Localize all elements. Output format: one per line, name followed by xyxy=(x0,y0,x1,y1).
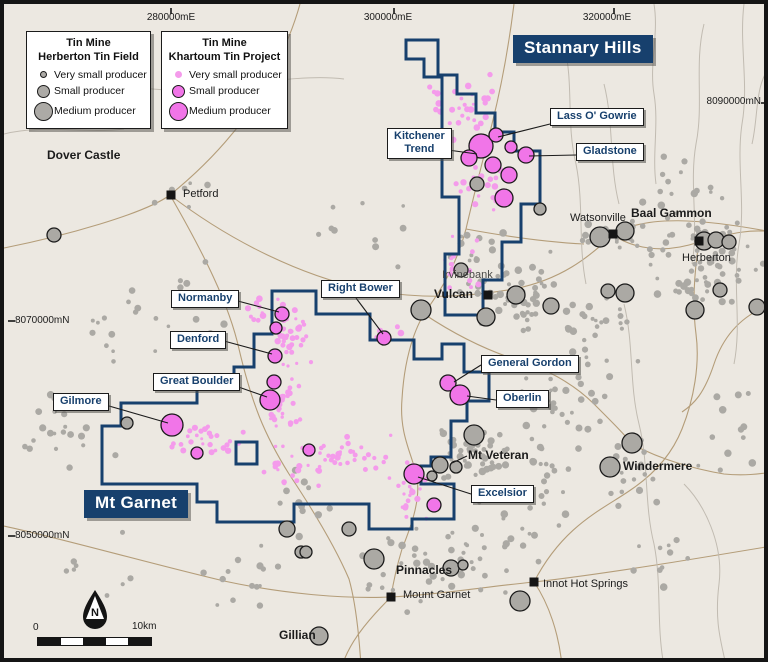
mine-dot-gray xyxy=(503,590,508,595)
mine-dot-gray xyxy=(698,265,704,271)
mine-dot-gray xyxy=(27,446,33,452)
mine-dot-gray xyxy=(676,289,682,295)
mine-dot-gray xyxy=(605,359,609,363)
mine-dot-gray xyxy=(445,474,451,480)
mine-circle-pink xyxy=(485,157,501,173)
mine-dot-gray xyxy=(669,192,673,196)
mine-dot-gray xyxy=(386,536,390,540)
north-arrow-icon: N xyxy=(80,588,110,632)
mine-dot-pink xyxy=(472,118,476,122)
mine-circle-gray xyxy=(543,298,559,314)
mine-dot-gray xyxy=(536,276,542,282)
road-line xyxy=(466,229,584,244)
mine-circle-pink xyxy=(505,141,517,153)
mine-dot-gray xyxy=(566,466,572,472)
mine-dot-pink xyxy=(290,455,293,458)
mine-dot-gray xyxy=(482,573,488,579)
mine-dot-gray xyxy=(741,435,746,440)
mine-dot-gray xyxy=(585,362,591,368)
mine-dot-gray xyxy=(154,316,159,321)
mine-dot-pink xyxy=(473,165,478,170)
mine-dot-pink xyxy=(299,343,304,348)
mine-dot-gray xyxy=(495,274,500,279)
mine-dot-gray xyxy=(457,289,463,295)
legend-item: Small producer xyxy=(32,85,145,98)
mine-dot-gray xyxy=(489,246,496,253)
mine-circle-pink xyxy=(161,414,183,436)
mine-dot-gray xyxy=(657,567,663,573)
mine-dot-gray xyxy=(66,464,72,470)
mine-dot-gray xyxy=(667,544,671,548)
mine-circle-gray xyxy=(622,433,642,453)
mine-dot-gray xyxy=(660,583,668,591)
mine-dot-gray xyxy=(430,572,437,579)
mine-dot-gray xyxy=(72,567,76,571)
mine-dot-gray xyxy=(472,525,479,532)
scale-bar-segment xyxy=(128,638,151,645)
legend-title-line2: Herberton Tin Field xyxy=(38,51,139,63)
mine-dot-gray xyxy=(621,478,627,484)
mine-dot-gray xyxy=(637,544,641,548)
legend-item-label: Very small producer xyxy=(54,69,147,81)
mine-dot-gray xyxy=(399,561,403,565)
mine-dot-pink xyxy=(363,467,368,472)
legend-item-label: Medium producer xyxy=(54,105,136,117)
mine-dot-gray xyxy=(735,221,740,226)
mine-dot-gray xyxy=(520,542,526,548)
mine-dot-pink xyxy=(366,452,371,457)
mine-dot-pink xyxy=(201,442,204,445)
mine-dot-gray xyxy=(445,534,451,540)
road-line xyxy=(170,195,361,662)
town-marker-mount-garnet xyxy=(387,593,396,602)
mine-dot-gray xyxy=(632,477,636,481)
mine-dot-pink xyxy=(298,417,302,421)
mine-dot-pink xyxy=(465,83,472,90)
mine-dot-gray xyxy=(480,533,484,537)
mine-dot-pink xyxy=(187,428,192,433)
mine-dot-gray xyxy=(636,359,641,364)
mine-dot-pink xyxy=(466,116,470,120)
mine-dot-pink xyxy=(449,257,453,261)
mine-dot-pink xyxy=(463,103,467,107)
mine-dot-pink xyxy=(214,433,219,438)
mine-dot-gray xyxy=(482,455,489,462)
mine-dot-gray xyxy=(412,545,419,552)
mine-dot-pink xyxy=(292,307,298,313)
mine-dot-gray xyxy=(503,302,507,306)
mine-dot-gray xyxy=(529,264,536,271)
mine-dot-pink xyxy=(451,235,454,238)
mine-dot-gray xyxy=(515,266,523,274)
mine-dot-gray xyxy=(523,422,531,430)
mine-dot-gray xyxy=(47,430,54,437)
creek-line xyxy=(604,84,619,204)
mine-dot-pink xyxy=(315,468,320,473)
mine-dot-gray xyxy=(372,243,379,250)
mine-dot-gray xyxy=(474,257,480,263)
swatch-cell xyxy=(167,71,189,78)
mine-dot-gray xyxy=(608,491,613,496)
mine-dot-gray xyxy=(641,449,647,455)
mine-dot-gray xyxy=(548,377,553,382)
mine-dot-gray xyxy=(681,158,687,164)
mine-dot-gray xyxy=(643,472,648,477)
mine-dot-gray xyxy=(603,317,610,324)
mine-dot-gray xyxy=(521,328,526,333)
mine-dot-gray xyxy=(665,179,671,185)
swatch-cell xyxy=(32,102,54,121)
swatch-cell xyxy=(167,85,189,98)
mine-dot-gray xyxy=(391,588,395,592)
mine-circle-gray xyxy=(600,457,620,477)
mine-circle-pink xyxy=(377,331,391,345)
mine-circle-gray xyxy=(534,203,546,215)
mine-circle-pink xyxy=(267,375,281,389)
mine-dot-gray xyxy=(530,458,538,466)
legend-title-line2: Khartoum Tin Project xyxy=(169,51,281,63)
mine-dot-gray xyxy=(754,268,758,272)
mine-dot-pink xyxy=(450,137,456,143)
mine-dot-gray xyxy=(592,333,598,339)
town-marker-innot-hot-springs xyxy=(530,578,539,587)
mine-dot-gray xyxy=(760,261,766,267)
mine-dot-pink xyxy=(281,415,284,418)
mine-dot-pink xyxy=(488,176,494,182)
mine-dot-gray xyxy=(296,533,303,540)
mine-dot-gray xyxy=(563,308,570,315)
mine-dot-gray xyxy=(561,490,565,494)
mine-dot-gray xyxy=(188,181,192,185)
mine-dot-pink xyxy=(454,181,459,186)
mine-dot-gray xyxy=(480,461,485,466)
mine-dot-gray xyxy=(465,461,472,468)
mine-dot-gray xyxy=(283,488,290,495)
mine-dot-gray xyxy=(637,465,643,471)
mine-dot-pink xyxy=(262,470,267,475)
mine-circle-gray xyxy=(427,471,437,481)
mine-circle-gray xyxy=(450,461,462,473)
mine-dot-pink xyxy=(353,458,357,462)
mine-dot-pink xyxy=(274,445,277,448)
mine-dot-gray xyxy=(534,360,540,366)
mine-dot-gray xyxy=(89,330,95,336)
mine-dot-pink xyxy=(249,315,253,319)
mine-dot-gray xyxy=(423,552,427,556)
mine-dot-gray xyxy=(675,211,679,215)
mine-dot-pink xyxy=(487,72,492,77)
mine-circle-gray xyxy=(590,227,610,247)
legend-item: Medium producer xyxy=(32,102,145,121)
mine-dot-gray xyxy=(630,219,635,224)
mine-dot-gray xyxy=(724,450,731,457)
mine-dot-gray xyxy=(372,237,378,243)
mine-circle-gray xyxy=(47,228,61,242)
mine-dot-gray xyxy=(367,582,373,588)
mine-dot-gray xyxy=(134,305,141,312)
mine-dot-pink xyxy=(486,183,490,187)
road-line xyxy=(534,582,562,662)
mine-dot-pink xyxy=(457,106,461,110)
mine-dot-gray xyxy=(620,490,625,495)
mine-dot-pink xyxy=(373,465,378,470)
mine-dot-gray xyxy=(689,268,694,273)
mine-dot-gray xyxy=(680,282,688,290)
mine-dot-gray xyxy=(39,424,46,431)
mine-circle-gray xyxy=(310,627,328,645)
mine-dot-gray xyxy=(482,447,486,451)
mine-dot-gray xyxy=(426,578,433,585)
mine-dot-pink xyxy=(207,431,212,436)
mine-dot-gray xyxy=(552,468,558,474)
mine-dot-gray xyxy=(360,201,364,205)
mine-dot-gray xyxy=(679,170,683,174)
leader-line xyxy=(467,396,496,400)
mine-dot-gray xyxy=(495,307,502,314)
mine-dot-pink xyxy=(198,429,203,434)
mine-dot-gray xyxy=(201,300,206,305)
mine-dot-pink xyxy=(291,401,296,406)
mine-dot-pink xyxy=(169,444,174,449)
mine-dot-gray xyxy=(657,189,663,195)
mine-dot-gray xyxy=(707,259,713,265)
mine-circle-pink xyxy=(275,307,289,321)
mine-dot-pink xyxy=(289,329,293,333)
leader-line xyxy=(224,341,272,354)
mine-dot-gray xyxy=(565,420,570,425)
mine-circle-pink xyxy=(495,189,513,207)
legend-title: Tin Mine Khartoum Tin Project xyxy=(167,37,282,65)
mine-dot-gray xyxy=(529,365,535,371)
mine-dot-gray xyxy=(735,391,742,398)
mine-dot-gray xyxy=(749,459,757,467)
mine-dot-gray xyxy=(536,559,542,565)
mine-dot-gray xyxy=(152,200,158,206)
mine-dot-gray xyxy=(532,285,538,291)
mine-dot-gray xyxy=(381,572,386,577)
mine-dot-gray xyxy=(713,256,718,261)
creek-line xyxy=(653,4,656,184)
swatch-cell xyxy=(32,71,54,78)
mine-dot-gray xyxy=(527,505,533,511)
mine-dot-gray xyxy=(653,499,660,506)
creek-line xyxy=(564,44,586,284)
mine-dot-gray xyxy=(703,275,708,280)
mine-dot-pink xyxy=(200,437,203,440)
mine-dot-gray xyxy=(412,553,417,558)
mine-dot-gray xyxy=(618,246,622,250)
mine-dot-gray xyxy=(525,302,530,307)
mine-dot-gray xyxy=(724,225,729,230)
mine-dot-pink xyxy=(294,317,297,320)
mine-dot-gray xyxy=(331,205,336,210)
mine-dot-gray xyxy=(578,381,584,387)
mine-dot-pink xyxy=(485,95,491,101)
mine-dot-gray xyxy=(121,582,125,586)
mine-dot-gray xyxy=(129,287,136,294)
mine-dot-gray xyxy=(618,313,624,319)
mine-dot-pink xyxy=(398,330,405,337)
mine-dot-pink xyxy=(195,434,199,438)
mine-dot-pink xyxy=(335,451,341,457)
mine-dot-pink xyxy=(427,84,432,89)
mine-dot-gray xyxy=(544,462,549,467)
mine-dot-pink xyxy=(359,445,363,449)
scale-bar-segment xyxy=(83,638,106,645)
mine-dot-gray xyxy=(428,563,435,570)
mine-dot-gray xyxy=(177,284,183,290)
mine-dot-gray xyxy=(306,485,311,490)
mine-dot-gray xyxy=(700,297,705,302)
mine-dot-pink xyxy=(353,453,358,458)
mine-circle-pink xyxy=(450,385,470,405)
mine-dot-gray xyxy=(720,271,726,277)
scale-bar-segment xyxy=(38,638,61,645)
mine-dot-gray xyxy=(508,497,514,503)
legend-herberton-tin-field: Tin Mine Herberton Tin Field Very small … xyxy=(26,31,151,129)
mine-circle-gray xyxy=(722,235,736,249)
swatch-cell xyxy=(32,85,54,98)
mine-dot-gray xyxy=(448,547,455,554)
mine-dot-pink xyxy=(344,434,350,440)
mine-dot-pink xyxy=(275,424,278,427)
mine-dot-gray xyxy=(64,568,69,573)
mine-dot-gray xyxy=(542,424,546,428)
mine-dot-gray xyxy=(468,259,472,263)
mine-dot-gray xyxy=(316,232,321,237)
mine-circle-gray xyxy=(713,283,727,297)
mine-dot-gray xyxy=(464,232,471,239)
mine-dot-gray xyxy=(275,564,281,570)
mine-dot-gray xyxy=(183,280,190,287)
mine-dot-pink xyxy=(326,454,330,458)
mine-dot-gray xyxy=(482,545,487,550)
scale-bar-segment xyxy=(106,638,129,645)
mine-dot-pink xyxy=(396,484,400,488)
mine-dot-gray xyxy=(685,556,690,561)
mine-dot-gray xyxy=(719,406,727,414)
mine-dot-gray xyxy=(220,320,227,327)
mine-dot-gray xyxy=(531,532,538,539)
boundary-mt-garnet-khartoum xyxy=(102,291,489,529)
mine-dot-gray xyxy=(615,443,622,450)
mine-dot-pink xyxy=(225,448,231,454)
mine-circle-gray xyxy=(454,263,468,277)
mine-dot-gray xyxy=(54,447,58,451)
legend-item: Very small producer xyxy=(32,69,145,81)
mine-dot-gray xyxy=(507,282,511,286)
mine-circle-gray xyxy=(470,177,484,191)
mine-dot-gray xyxy=(727,230,732,235)
mine-dot-gray xyxy=(737,268,741,272)
mine-dot-gray xyxy=(562,387,569,394)
mine-dot-pink xyxy=(472,201,478,207)
mine-dot-pink xyxy=(414,496,420,502)
mine-dot-gray xyxy=(254,584,260,590)
mine-circle-pink xyxy=(404,464,424,484)
mine-dot-gray xyxy=(474,290,481,297)
mine-dot-pink xyxy=(282,363,285,366)
mine-dot-gray xyxy=(635,244,639,248)
road-line xyxy=(342,597,391,662)
mine-circle-gray xyxy=(458,560,468,570)
mine-dot-gray xyxy=(557,523,562,528)
mine-dot-gray xyxy=(301,478,308,485)
mine-dot-gray xyxy=(602,394,608,400)
mine-dot-gray xyxy=(504,568,509,573)
mine-dot-pink xyxy=(489,89,495,95)
mine-dot-pink xyxy=(207,442,212,447)
mine-dot-gray xyxy=(108,331,115,338)
mine-dot-pink xyxy=(270,414,275,419)
mine-dot-gray xyxy=(606,373,613,380)
mine-dot-gray xyxy=(111,349,115,353)
north-letter: N xyxy=(91,607,99,619)
mine-dot-gray xyxy=(490,464,496,470)
mine-dot-pink xyxy=(402,492,405,495)
mine-dot-gray xyxy=(477,500,481,504)
mine-dot-gray xyxy=(584,221,592,229)
mine-dot-gray xyxy=(215,603,219,607)
mine-dot-gray xyxy=(525,318,530,323)
mine-dot-gray xyxy=(226,569,231,574)
mine-dot-gray xyxy=(562,510,570,518)
mine-dot-gray xyxy=(220,576,226,582)
legend-khartoum-tin-project: Tin Mine Khartoum Tin Project Very small… xyxy=(161,31,288,129)
mine-dot-pink xyxy=(297,384,302,389)
mine-dot-gray xyxy=(520,311,525,316)
mine-dot-gray xyxy=(658,202,666,210)
mine-dot-gray xyxy=(665,215,670,220)
mine-dot-pink xyxy=(460,114,464,118)
mine-dot-pink xyxy=(472,103,475,106)
mine-dot-pink xyxy=(475,281,481,287)
mine-circle-gray xyxy=(477,308,495,326)
mine-dot-gray xyxy=(660,172,665,177)
town-marker-herberton xyxy=(695,237,704,246)
mine-dot-gray xyxy=(499,229,507,237)
mine-dot-gray xyxy=(530,437,535,442)
mine-dot-pink xyxy=(245,305,251,311)
mine-dot-pink xyxy=(275,460,281,466)
mine-dot-gray xyxy=(570,411,574,415)
mine-dot-gray xyxy=(720,196,724,200)
mine-dot-gray xyxy=(551,281,558,288)
mine-dot-gray xyxy=(539,462,543,466)
mine-dot-pink xyxy=(281,479,287,485)
mine-dot-gray xyxy=(595,324,600,329)
mine-dot-pink xyxy=(404,515,408,519)
mine-dot-pink xyxy=(492,208,495,211)
mine-dot-gray xyxy=(585,355,589,359)
mine-dot-gray xyxy=(520,527,524,531)
creek-line xyxy=(624,304,664,662)
mine-dot-gray xyxy=(111,359,116,364)
mine-dot-gray xyxy=(667,233,671,237)
mine-dot-gray xyxy=(550,410,555,415)
mine-dot-pink xyxy=(256,318,261,323)
legend-title-line1: Tin Mine xyxy=(202,37,246,49)
mine-dot-gray xyxy=(533,311,538,316)
mine-dot-gray xyxy=(489,239,495,245)
mine-dot-gray xyxy=(686,222,692,228)
mine-dot-pink xyxy=(432,90,437,95)
mine-dot-pink xyxy=(383,455,388,460)
mine-dot-gray xyxy=(102,315,107,320)
mine-dot-gray xyxy=(203,259,209,265)
mine-dot-gray xyxy=(81,443,85,447)
mine-dot-gray xyxy=(544,489,549,494)
